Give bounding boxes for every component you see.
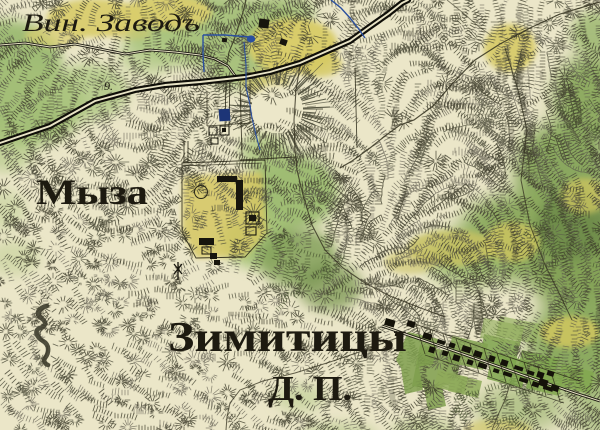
svg-text:9.: 9. — [104, 79, 113, 93]
svg-text:Вин. Заводъ: Вин. Заводъ — [22, 10, 200, 37]
svg-text:Мыза: Мыза — [36, 172, 148, 212]
svg-text:Д. П.: Д. П. — [268, 369, 352, 408]
svg-text:Зимитицы: Зимитицы — [168, 315, 407, 361]
